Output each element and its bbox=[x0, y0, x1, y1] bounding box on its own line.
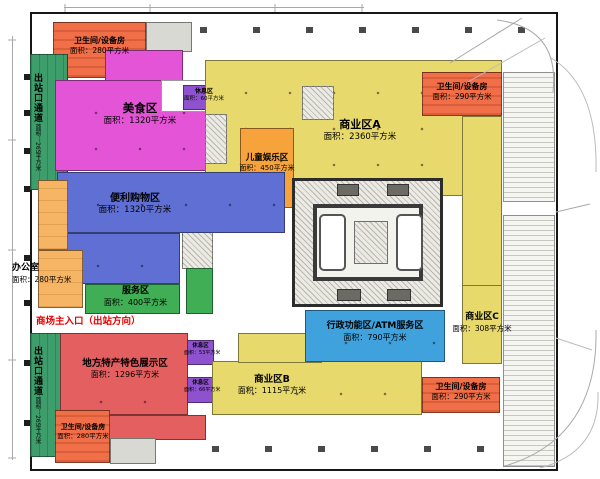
zone-area: 面积：265平方米 bbox=[33, 397, 42, 444]
zone-utility-gray-bottom bbox=[110, 438, 156, 464]
zone-business-c-region bbox=[462, 285, 502, 364]
zone-service-region-block bbox=[186, 268, 213, 314]
zone-area: 面积：265平方米 bbox=[33, 124, 42, 171]
dimension-line-top bbox=[64, 7, 364, 8]
zone-admin-atm-region bbox=[305, 310, 445, 362]
zone-business-a-right-strip bbox=[462, 116, 502, 286]
zone-office-region bbox=[38, 180, 68, 250]
core-center-stair bbox=[354, 221, 388, 264]
elevator-shaft-right bbox=[396, 214, 423, 271]
zone-specialty-region bbox=[60, 333, 188, 415]
zone-office-region-lower bbox=[38, 250, 83, 308]
zone-service-region bbox=[85, 284, 180, 314]
zone-exit-corridor-bottom-label: 出站口通道 面积：265平方米 bbox=[31, 334, 44, 456]
core-column-stub bbox=[387, 289, 411, 301]
zone-name: 出站口通道 bbox=[31, 73, 44, 123]
core-column-stub bbox=[337, 184, 359, 196]
zone-business-b-region bbox=[212, 361, 422, 415]
ramp-area-bottom-right bbox=[503, 215, 555, 467]
zone-exit-corridor-top-label: 出站口通道 面积：265平方米 bbox=[31, 55, 44, 189]
zone-food-court-region-upper bbox=[105, 50, 183, 81]
zone-restroom-top-right-region bbox=[422, 72, 502, 116]
floor-plan: 出站口通道 面积：265平方米 出站口通道 面积：265平方米 bbox=[0, 0, 600, 479]
escalator-block-1 bbox=[205, 114, 227, 164]
zone-rest-area-low-region bbox=[187, 377, 214, 403]
core-column-stub bbox=[337, 289, 361, 301]
escalator-block-2 bbox=[302, 86, 334, 120]
zone-utility-gray-top bbox=[146, 22, 192, 52]
zone-restroom-bottom-right-region bbox=[422, 377, 500, 413]
core-column-stub bbox=[387, 184, 409, 196]
column-markers-top bbox=[200, 27, 556, 33]
ramp-area-top-right bbox=[503, 72, 555, 202]
escalator-block-3 bbox=[182, 229, 213, 269]
zone-convenience-region bbox=[57, 172, 285, 233]
zone-name: 出站口通道 bbox=[31, 346, 44, 396]
elevator-shaft-left bbox=[319, 214, 346, 271]
zone-rest-area-mid-region bbox=[187, 340, 214, 365]
dimension-line-left bbox=[12, 36, 13, 460]
zone-restroom-bottom-left-region bbox=[55, 410, 110, 463]
